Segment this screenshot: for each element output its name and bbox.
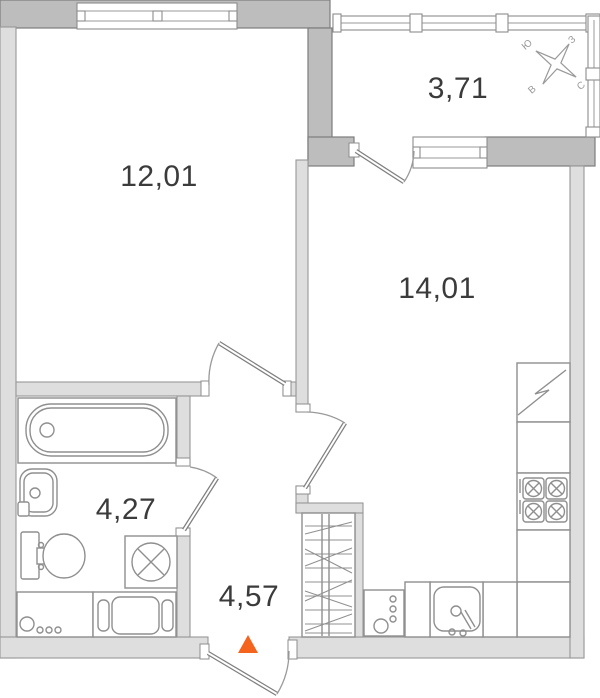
wardrobe-icon bbox=[302, 513, 355, 637]
fridge-icon bbox=[517, 363, 570, 422]
built-in-appliance-icon bbox=[364, 590, 404, 636]
compass-icon: Ю З В С bbox=[520, 34, 588, 97]
laundry-appliance-icon bbox=[17, 592, 93, 637]
entrance-marker-icon bbox=[238, 635, 258, 653]
kitchen-counter bbox=[517, 530, 570, 582]
living-room-area-label: 12,01 bbox=[120, 160, 198, 194]
compass-north-label: С bbox=[575, 80, 588, 93]
kitchen-counter bbox=[517, 582, 570, 637]
bathroom-door bbox=[176, 458, 217, 536]
toilet-icon bbox=[21, 532, 85, 579]
kitchen-counter bbox=[405, 582, 430, 637]
bathtub-icon bbox=[18, 398, 176, 463]
washing-machine-spot-icon bbox=[125, 536, 177, 588]
floor-plan-drawing: Ю З В С bbox=[0, 0, 600, 698]
balcony-area-label: 3,71 bbox=[428, 72, 488, 106]
compass-south-label: Ю bbox=[520, 38, 535, 53]
washbasin-icon bbox=[18, 469, 57, 516]
kitchen-counter bbox=[483, 582, 517, 637]
floor-plan: Ю З В С 12,01 3,71 14,01 4,27 4,57 bbox=[0, 0, 600, 698]
kitchen-door bbox=[296, 404, 345, 494]
balcony-door bbox=[349, 143, 414, 182]
stove-icon bbox=[517, 473, 570, 530]
bathroom-area-label: 4,27 bbox=[96, 493, 156, 527]
bathroom-cabinet-icon bbox=[93, 592, 176, 637]
living-room-door bbox=[201, 343, 291, 396]
kitchen-window bbox=[413, 137, 487, 168]
kitchen-counter bbox=[517, 422, 570, 473]
compass-east-label: В bbox=[526, 84, 538, 97]
kitchen-sink-icon bbox=[430, 582, 483, 637]
kitchen-area-label: 14,01 bbox=[398, 272, 476, 306]
hallway-area-label: 4,57 bbox=[219, 580, 279, 614]
living-room-window bbox=[77, 3, 237, 29]
